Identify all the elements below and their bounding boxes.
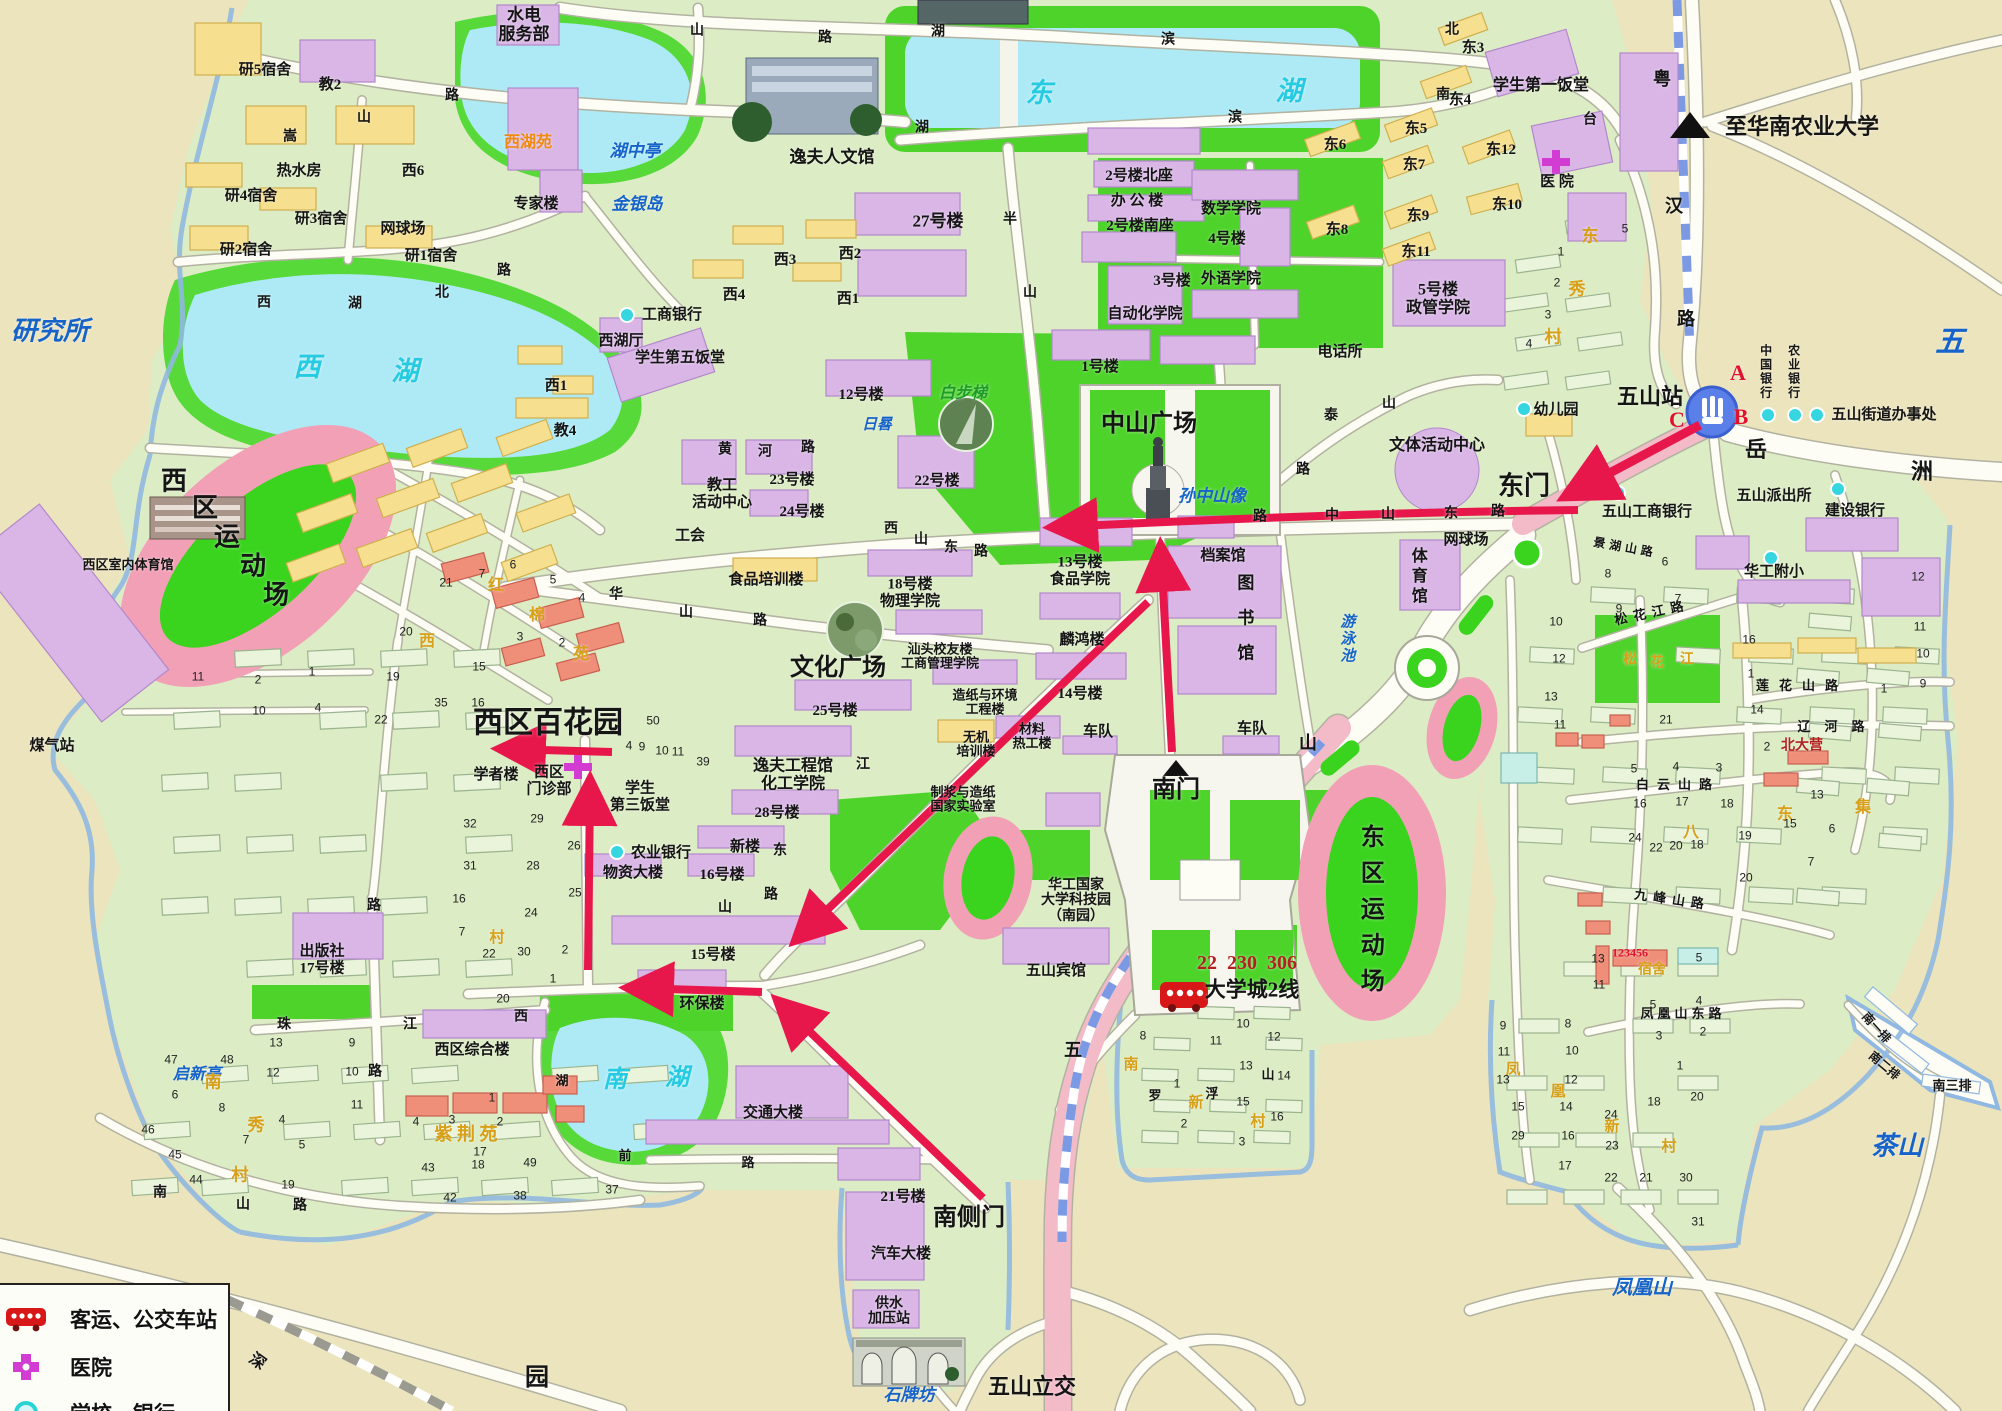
residential-block (622, 1065, 669, 1083)
building-purple (1094, 161, 1194, 187)
legend-item-bus: 客运、公交车站 (0, 1299, 217, 1339)
residential-block (1519, 1019, 1559, 1033)
residential-block (235, 649, 282, 667)
residential-block (1603, 887, 1648, 904)
residential-block (1796, 888, 1839, 906)
legend-label: 学校、银行 (70, 1398, 175, 1411)
residential-block (1564, 1076, 1604, 1090)
building-purple (1108, 266, 1182, 324)
residential-block (466, 835, 513, 853)
residential-block (393, 959, 440, 977)
residential-block (162, 773, 209, 791)
building-yellow (186, 163, 242, 187)
residential-block (342, 1065, 389, 1083)
building-purple (826, 360, 931, 396)
canteen6-photo (150, 497, 245, 539)
residential-block (1878, 723, 1921, 741)
residential-block (1810, 707, 1855, 724)
residential-block (1808, 613, 1851, 631)
building-purple (1240, 208, 1290, 266)
building-yellow (260, 188, 316, 210)
building-red (1788, 751, 1828, 764)
building-purple (1168, 546, 1281, 618)
building-yellow (336, 106, 414, 144)
residential-block (1621, 1190, 1661, 1204)
building-yellow (733, 226, 783, 244)
building-cyan (1501, 753, 1537, 783)
residential-block (381, 897, 428, 915)
residential-block (494, 1121, 541, 1139)
residential-block (174, 711, 221, 729)
residential-block (1676, 887, 1721, 904)
building-purple (1738, 580, 1850, 603)
building-yellow (733, 558, 817, 581)
residential-block (1678, 1190, 1718, 1204)
legend-label: 医院 (70, 1352, 112, 1382)
building-yellow (806, 220, 856, 238)
building-purple (858, 250, 966, 296)
residential-block (1633, 1133, 1673, 1147)
stone-archway-photo (853, 1338, 965, 1386)
residential-block (1749, 887, 1794, 904)
building-purple (846, 1192, 924, 1280)
building-purple (1393, 260, 1505, 326)
residential-block (1664, 827, 1709, 844)
school-bank-icon (0, 1398, 52, 1411)
culture-square-photo (827, 602, 883, 658)
residential-block (1576, 1133, 1616, 1147)
building-purple (1082, 232, 1176, 262)
building-purple (933, 660, 1017, 684)
residential-block (1254, 1006, 1290, 1019)
building-yellow (246, 106, 306, 144)
building-red (1556, 733, 1578, 746)
building-red (1613, 950, 1667, 966)
building-purple (1806, 518, 1898, 551)
building-yellow (518, 346, 562, 364)
building-yellow (1858, 648, 1916, 663)
building-purple (497, 5, 559, 45)
building-red (406, 1096, 448, 1116)
building-yellow (190, 226, 248, 250)
east-sports-field (1298, 765, 1446, 1021)
residential-block (1690, 1019, 1730, 1033)
residential-block (1664, 587, 1709, 604)
building-purple (688, 854, 754, 876)
building-purple (1003, 928, 1109, 964)
building-yellow (1733, 643, 1791, 658)
residential-block (1676, 767, 1721, 784)
building-yellow (938, 720, 994, 742)
building-purple (750, 490, 808, 516)
residential-block (482, 1177, 529, 1195)
building-purple (1160, 336, 1255, 364)
residential-block (308, 649, 355, 667)
legend-item-hospital: 医院 (0, 1347, 112, 1387)
building-purple (1395, 428, 1479, 512)
building-red (543, 1076, 577, 1094)
building-purple (612, 916, 825, 944)
building-purple (1063, 736, 1117, 754)
residential-block (1808, 723, 1851, 741)
residential-block (1866, 778, 1909, 796)
residential-block (1866, 668, 1909, 686)
map-legend: 客运、公交车站 医院 学校、银行 (0, 1283, 230, 1411)
residential-block (247, 959, 294, 977)
residential-block (284, 1121, 331, 1139)
residential-block (1603, 767, 1648, 784)
building-purple (1046, 793, 1100, 826)
residential-block (235, 773, 282, 791)
residential-block (381, 773, 428, 791)
residential-block (1198, 1068, 1234, 1081)
building-yellow (516, 398, 588, 418)
legend-item-school-bank: 学校、银行 (0, 1393, 175, 1411)
building-purple (735, 726, 851, 756)
building-purple (795, 680, 911, 710)
residential-block (1530, 647, 1575, 664)
building-red (1578, 893, 1602, 906)
hospital-icon (0, 1352, 52, 1382)
building-purple (896, 610, 982, 634)
building-purple (736, 1066, 848, 1118)
residential-block (424, 1121, 471, 1139)
residential-block (1796, 668, 1839, 686)
residential-block (320, 959, 367, 977)
residential-block (1266, 1037, 1302, 1050)
building-purple (1620, 53, 1678, 171)
legend-label: 客运、公交车站 (70, 1304, 217, 1334)
residential-block (1154, 1037, 1190, 1050)
building-yellow (195, 23, 261, 75)
building-purple (1568, 193, 1626, 241)
residential-block (412, 1065, 459, 1083)
residential-block (1564, 1190, 1604, 1204)
building-purple (540, 170, 582, 212)
campus-map: 水电 服务部研5宿舍教2热水房西6研4宿舍研3宿舍网球场研2宿舍研1宿舍专家楼西… (0, 0, 2002, 1411)
humanities-photo (732, 58, 882, 142)
building-purple (732, 790, 838, 814)
building-purple (682, 440, 736, 484)
building-purple (423, 1010, 546, 1038)
residential-block (1266, 1099, 1302, 1112)
building-purple (300, 40, 375, 82)
bus-station-icon (0, 1304, 52, 1334)
residential-block (454, 773, 501, 791)
residential-block (393, 711, 440, 729)
map-canvas (0, 0, 2002, 1411)
residential-block (1737, 827, 1782, 844)
residential-block (1878, 833, 1921, 851)
residential-block (1198, 1006, 1234, 1019)
building-purple (600, 318, 642, 352)
residential-block (412, 1177, 459, 1195)
residential-block (466, 711, 513, 729)
building-yellow (1526, 414, 1572, 436)
residential-block (1796, 778, 1839, 796)
residential-block (1737, 707, 1782, 724)
residential-block (1198, 1130, 1234, 1143)
building-purple (1178, 626, 1276, 694)
residential-block (1883, 707, 1928, 724)
residential-block (1676, 647, 1721, 664)
building-purple (1696, 536, 1749, 569)
building-purple (868, 550, 972, 576)
residential-block (1210, 1099, 1246, 1112)
residential-block (1507, 1076, 1547, 1090)
building-purple (1192, 290, 1298, 318)
building-purple (1223, 736, 1279, 754)
residential-block (552, 1177, 599, 1195)
residential-block (1142, 1130, 1178, 1143)
residential-block (1591, 827, 1636, 844)
residential-block (132, 1177, 179, 1195)
residential-block (320, 711, 367, 729)
residential-block (1518, 827, 1563, 844)
building-purple (1192, 170, 1298, 200)
building-red (1586, 921, 1610, 934)
building-purple (293, 913, 383, 959)
building-purple (838, 1148, 920, 1180)
building-purple (698, 826, 784, 848)
building-yellow (693, 260, 743, 278)
building-purple (853, 1290, 919, 1328)
residential-block (454, 649, 501, 667)
building-red (453, 1093, 497, 1113)
residential-block (1678, 1076, 1718, 1090)
residential-block (144, 1121, 191, 1139)
residential-block (202, 1065, 249, 1083)
residential-block (235, 897, 282, 915)
baibuti-photo (939, 397, 993, 451)
building-purple (508, 88, 578, 170)
residential-block (1518, 707, 1563, 724)
residential-block (162, 897, 209, 915)
building-purple (1088, 128, 1200, 154)
building-yellow (366, 226, 432, 248)
building-red (1610, 715, 1630, 726)
residential-block (342, 1177, 389, 1195)
residential-block (272, 1065, 319, 1083)
building-red (1764, 773, 1798, 786)
building-purple (1400, 540, 1460, 610)
building-cyan (1678, 948, 1718, 964)
residential-block (1142, 1068, 1178, 1081)
building-purple (1862, 558, 1940, 616)
residential-block (247, 835, 294, 853)
residential-block (1254, 1130, 1290, 1143)
building-red (503, 1093, 547, 1113)
residential-block (1633, 1019, 1673, 1033)
residential-block (466, 959, 513, 977)
residential-block (174, 835, 221, 853)
building-purple (1040, 593, 1120, 619)
gate-photo (918, 0, 1028, 24)
building-yellow (553, 376, 593, 394)
residential-block (1507, 1190, 1547, 1204)
residential-block (202, 1177, 249, 1195)
building-red (556, 1106, 584, 1122)
residential-block (1591, 587, 1636, 604)
building-purple (855, 193, 960, 235)
building-yellow (793, 263, 841, 281)
building-red (1596, 946, 1609, 984)
building-purple (746, 440, 812, 474)
residential-block (1519, 1133, 1559, 1147)
building-purple (1088, 195, 1204, 221)
residential-block (320, 835, 367, 853)
building-purple (1052, 330, 1150, 360)
building-red (1582, 735, 1604, 748)
building-yellow (1798, 638, 1856, 653)
residential-block (1154, 1099, 1190, 1112)
residential-block (381, 649, 428, 667)
residential-block (354, 1121, 401, 1139)
bus-icon (1160, 982, 1208, 1012)
building-purple (585, 854, 661, 876)
building-purple (646, 1120, 889, 1144)
